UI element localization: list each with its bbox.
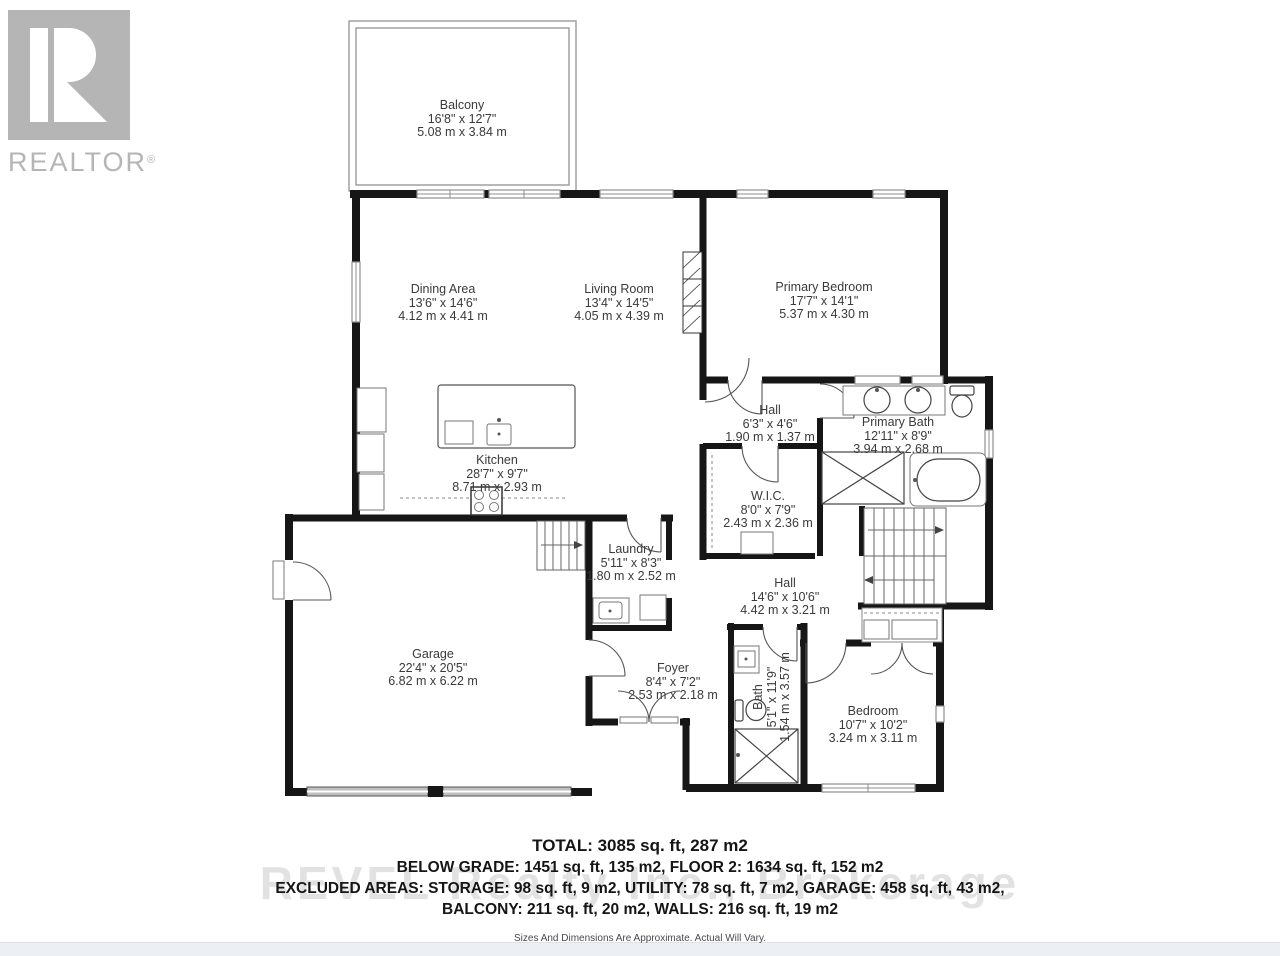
washer [640,595,666,620]
room-label-bath: Bath 5'1" x 11'9" 1.54 m x 3.57 m [752,652,793,742]
room-name: Primary Bedroom [775,281,872,295]
room-name: Garage [388,648,478,662]
room-dim-ft: 28'7" x 9'7" [452,468,542,482]
garage-doors [307,786,571,797]
room-name: Primary Bath [853,416,943,430]
room-dim-m: 3.24 m x 3.11 m [829,732,918,746]
closet-shelves [862,608,942,642]
room-name: Dining Area [398,283,488,297]
staircase-garage [537,521,585,570]
summary-balcony-walls: BALCONY: 211 sq. ft, 20 m2, WALLS: 216 s… [0,901,1280,919]
room-label-laundry: Laundry 5'11" x 8'3" 1.80 m x 2.52 m [586,543,676,584]
room-dim-ft: 8'0" x 7'9" [723,504,813,518]
room-label-foyer: Foyer 8'4" x 7'2" 2.53 m x 2.18 m [628,662,718,703]
room-dim-m: 5.08 m x 3.84 m [417,126,507,140]
floorplan-page: REALTOR® [0,0,1280,956]
room-dim-m: 4.42 m x 3.21 m [740,604,830,618]
room-dim-ft: 16'8" x 12'7" [417,113,507,127]
summary-below-grade: BELOW GRADE: 1451 sq. ft, 135 m2, FLOOR … [0,859,1280,877]
laundry-fixtures [593,595,666,623]
room-dim-ft: 8'4" x 7'2" [628,676,718,690]
bottom-strip [0,942,1280,956]
staircase-main [864,508,946,604]
toilet-primary [950,386,974,395]
fridge [357,388,386,432]
room-dim-m: 6.82 m x 6.22 m [388,675,478,689]
room-dim-m: 4.12 m x 4.41 m [398,310,488,324]
room-label-kitchen: Kitchen 28'7" x 9'7" 8.71 m x 2.93 m [452,454,542,495]
room-label-balcony: Balcony 16'8" x 12'7" 5.08 m x 3.84 m [417,99,507,140]
room-dim-ft: 10'7" x 10'2" [829,719,918,733]
room-dim-ft: 6'3" x 4'6" [725,418,815,432]
room-dim-m: 4.05 m x 4.39 m [574,310,664,324]
room-dim-ft: 5'1" x 11'9" [765,652,779,742]
toilet-bath [735,700,743,721]
room-dim-m: 2.43 m x 2.36 m [723,517,813,531]
room-dim-m: 5.37 m x 4.30 m [775,308,872,322]
room-name: Balcony [417,99,507,113]
room-dim-ft: 14'6" x 10'6" [740,591,830,605]
floor-plan-drawing [0,0,1280,956]
room-label-hall-lower: Hall 14'6" x 10'6" 4.42 m x 3.21 m [740,577,830,618]
summary-total: TOTAL: 3085 sq. ft, 287 m2 [0,836,1280,856]
room-label-wic: W.I.C. 8'0" x 7'9" 2.43 m x 2.36 m [723,490,813,531]
room-dim-ft: 12'11" x 8'9" [853,430,943,444]
room-label-living-room: Living Room 13'4" x 14'5" 4.05 m x 4.39 … [574,283,664,324]
room-dim-m: 1.80 m x 2.52 m [586,570,676,584]
room-dim-m: 2.53 m x 2.18 m [628,689,718,703]
room-dim-ft: 13'4" x 14'5" [574,297,664,311]
room-label-primary-bedroom: Primary Bedroom 17'7" x 14'1" 5.37 m x 4… [775,281,872,322]
room-dim-ft: 22'4" x 20'5" [388,662,478,676]
room-dim-ft: 17'7" x 14'1" [775,295,872,309]
room-label-bedroom: Bedroom 10'7" x 10'2" 3.24 m x 3.11 m [829,705,918,746]
room-name: Foyer [628,662,718,676]
room-dim-m: 1.90 m x 1.37 m [725,431,815,445]
room-name: Hall [725,404,815,418]
room-label-primary-bath: Primary Bath 12'11" x 8'9" 3.94 m x 2.68… [853,416,943,457]
room-name: Hall [740,577,830,591]
room-dim-m: 3.94 m x 2.68 m [853,443,943,457]
room-label-hall-upper: Hall 6'3" x 4'6" 1.90 m x 1.37 m [725,404,815,445]
room-name: Kitchen [452,454,542,468]
room-name: W.I.C. [723,490,813,504]
room-dim-ft: 5'11" x 8'3" [586,557,676,571]
fireplace [683,252,702,333]
room-dim-ft: 13'6" x 14'6" [398,297,488,311]
room-name: Bath [752,652,766,742]
area-summary: TOTAL: 3085 sq. ft, 287 m2 BELOW GRADE: … [0,836,1280,944]
summary-disclaimer: Sizes And Dimensions Are Approximate. Ac… [0,933,1280,944]
room-label-dining-area: Dining Area 13'6" x 14'6" 4.12 m x 4.41 … [398,283,488,324]
summary-excluded-areas: EXCLUDED AREAS: STORAGE: 98 sq. ft, 9 m2… [0,880,1280,898]
room-name: Laundry [586,543,676,557]
room-dim-m: 1.54 m x 3.57 m [779,652,793,742]
room-dim-m: 8.71 m x 2.93 m [452,481,542,495]
room-name: Bedroom [829,705,918,719]
room-name: Living Room [574,283,664,297]
kitchen-fixtures [357,385,575,515]
room-label-garage: Garage 22'4" x 20'5" 6.82 m x 6.22 m [388,648,478,689]
